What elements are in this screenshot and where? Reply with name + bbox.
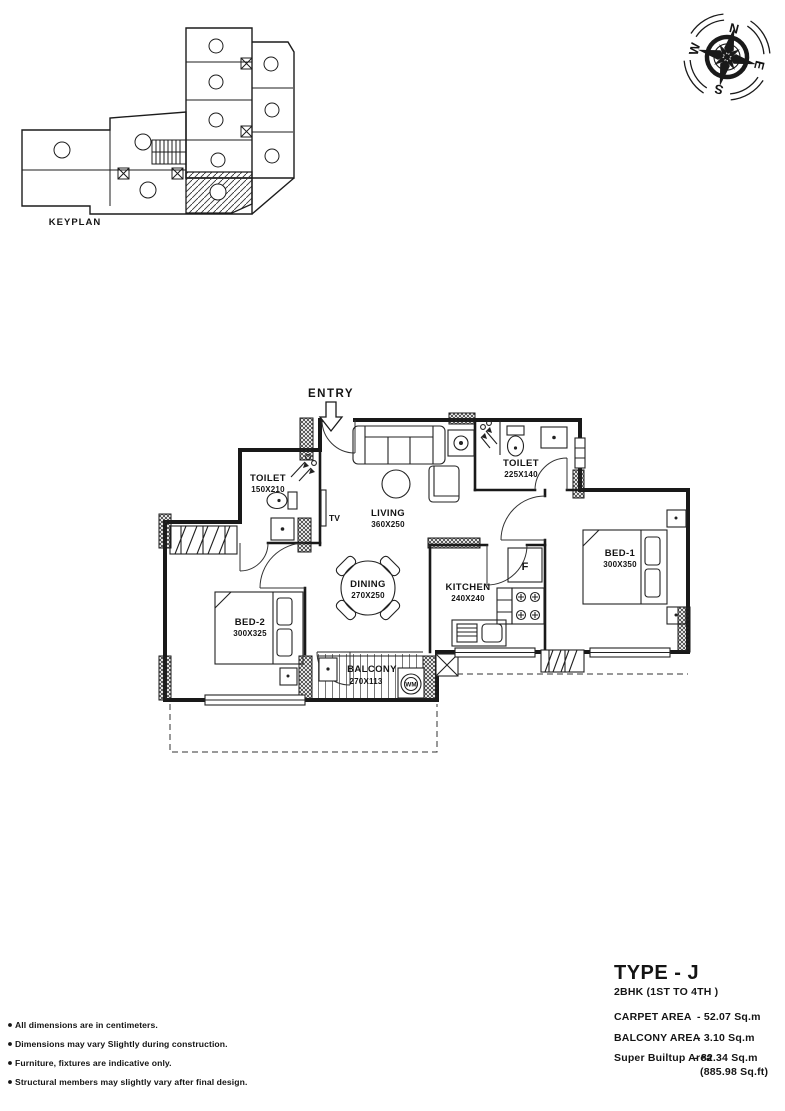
toilet2-dim: 225X140 [504,470,538,479]
balcony-area-label: BALCONY AREA [614,1032,701,1044]
floorplan-page: KEYPLAN N E S W [0,0,785,1111]
washbasin-icon [271,518,294,540]
room-bed1: BED-1 300X350 [583,510,686,624]
builtup-area-sqft: (885.98 Sq.ft) [700,1066,768,1078]
living-dim: 360X250 [371,520,405,529]
compass-icon: N E S W [675,5,779,109]
side-table-icon [448,430,474,456]
bed1-dim: 300X350 [603,560,637,569]
unit-info-block: TYPE - J 2BHK (1ST TO 4TH ) CARPET AREA … [614,962,768,1078]
toilet1-label: TOILET [250,473,286,484]
wardrobe-icon [170,526,237,554]
coffee-table-icon [382,470,410,498]
fridge-icon: F [508,548,542,582]
carpet-area-label: CARPET AREA [614,1011,692,1023]
armchair-icon [429,466,459,502]
bed1-label: BED-1 [605,548,636,559]
entry-arrow-icon [320,402,342,431]
note-1: All dimensions are in centimeters. [15,1020,158,1030]
kitchen-dim: 240X240 [451,594,485,603]
note-2: Dimensions may vary Slightly during cons… [15,1039,228,1049]
balcony-tap-icon [319,658,337,681]
compass-south-label: S [713,81,725,98]
shower-icon [481,421,497,448]
keyplan-highlighted-unit [186,172,252,213]
bullet-icon [8,1061,12,1065]
room-dining: DINING 270X250 [335,555,402,622]
bed2-label: BED-2 [235,617,266,628]
dining-label: DINING [350,579,386,590]
wc-icon [507,426,524,456]
living-label: LIVING [371,508,405,519]
bullet-icon [8,1042,12,1046]
room-toilet2: TOILET 225X140 [481,421,567,479]
balcony-dim: 270X113 [350,677,383,686]
type-title: TYPE - J [614,962,699,984]
bullet-icon [8,1023,12,1027]
entry-label: ENTRY [308,388,354,400]
tv-label: TV [329,513,340,523]
dining-dim: 270X250 [351,591,385,600]
kitchen-label: KITCHEN [445,582,490,593]
compass-east-label: E [751,59,768,71]
sink-icon [452,620,506,646]
hob-icon [497,588,544,624]
balcony-label: BALCONY [347,664,397,675]
note-4: Structural members may slightly vary aft… [15,1077,247,1087]
keyplan-column-marker [241,58,252,137]
bedside-table-icon [667,510,686,624]
room-bed2: BED-2 300X325 [170,526,303,685]
washing-machine-icon: WM [398,668,424,698]
main-floor-plan: ENTRY TV LIVING 360X250 [159,388,690,752]
note-3: Furniture, fixtures are indicative only. [15,1058,172,1068]
washbasin-icon [541,427,567,448]
keyplan: KEYPLAN [22,28,294,228]
bed2-dim: 300X325 [233,629,267,638]
tv-icon [321,490,326,526]
keyplan-label: KEYPLAN [49,217,101,228]
room-kitchen: F KITCHEN 240X240 [445,548,544,646]
sofa-icon [353,426,445,464]
toilet1-dim: 150X210 [251,485,285,494]
projection-dashed-outline [170,704,437,752]
bed-icon [215,592,303,664]
compass-west-label: W [686,40,704,56]
toilet2-label: TOILET [503,458,539,469]
wc-icon [267,492,297,509]
louver-strip [541,650,584,672]
type-subtitle: 2BHK (1ST TO 4TH ) [614,986,718,998]
bullet-icon [8,1080,12,1084]
notes-block: All dimensions are in centimeters. Dimen… [8,1020,247,1087]
room-living: TV LIVING 360X250 [321,426,474,529]
builtup-area-value: - 82.34 Sq.m [694,1052,758,1064]
compass-north-label: N [728,20,741,37]
fridge-label: F [522,561,529,573]
bedside-table-icon [280,668,297,685]
balcony-area-value: - 3.10 Sq.m [697,1032,755,1044]
keyplan-stair-core [152,140,186,164]
washing-machine-label: WM [405,682,416,689]
carpet-area-value: - 52.07 Sq.m [697,1011,761,1023]
floorplan-drawing: KEYPLAN N E S W [0,0,785,1111]
